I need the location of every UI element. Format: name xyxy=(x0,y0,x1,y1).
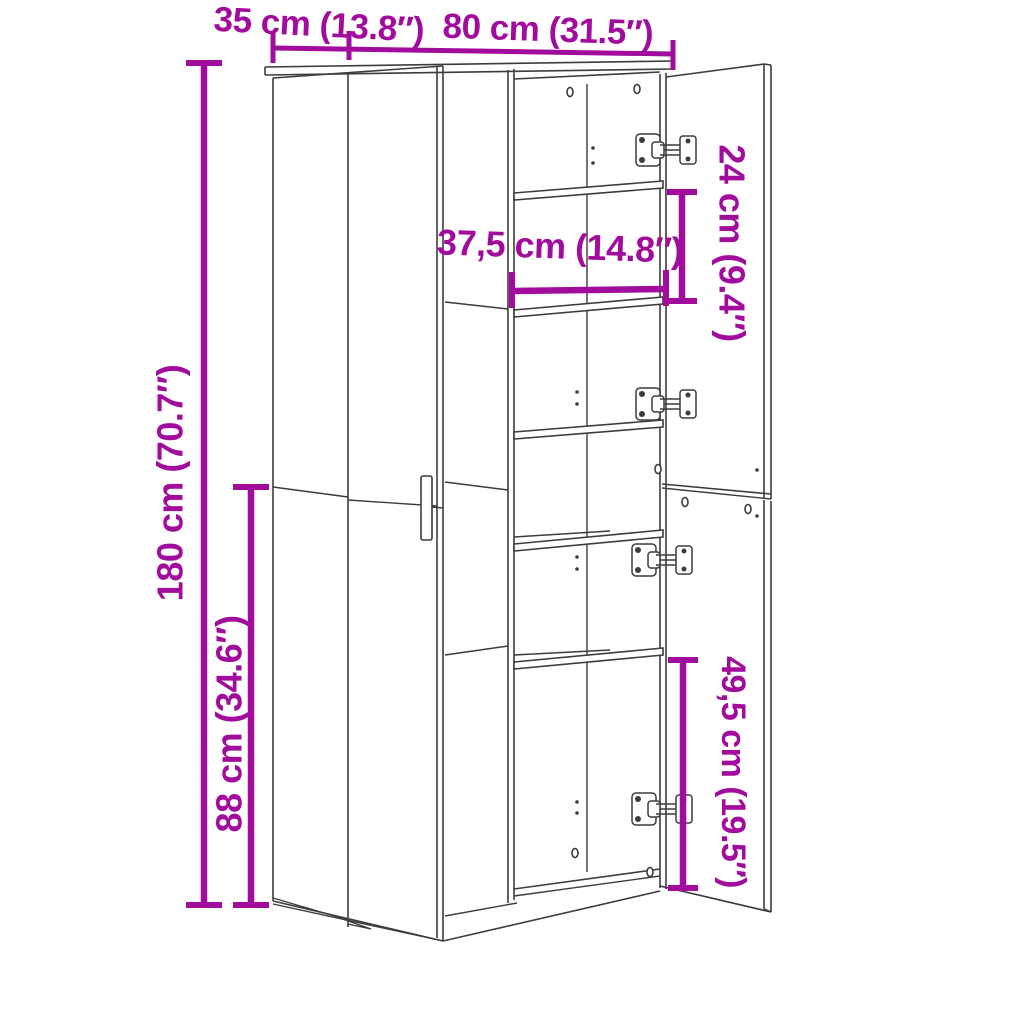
height-dimension-label: 180 cm (70.7″) xyxy=(150,365,191,601)
shelf-1 xyxy=(514,181,663,200)
width-dimension-label: 80 cm (31.5″) xyxy=(442,7,654,53)
lower-compartment-dimension-label: 49,5 cm (19.5″) xyxy=(714,656,752,888)
dimension-line-upper-compartment: 24 cm (9.4″) xyxy=(667,144,752,341)
dimension-line-top: 35 cm (13.8″) 80 cm (31.5″) xyxy=(213,0,673,70)
shelf-3 xyxy=(514,420,663,439)
door-handle xyxy=(421,476,432,540)
dimension-annotations: 35 cm (13.8″) 80 cm (31.5″) 180 cm (70.7… xyxy=(150,0,753,905)
upper-compartment-dimension-label: 24 cm (9.4″) xyxy=(711,144,752,341)
center-partition xyxy=(445,69,517,916)
dimension-line-lower-height: 88 cm (34.6″) xyxy=(209,487,269,905)
dimension-line-inner-width: 37,5 cm (14.8″) xyxy=(436,221,683,308)
cabinet-base xyxy=(443,869,660,941)
cabinet-top-panel xyxy=(265,61,674,75)
cabinet-diagram-svg: 35 cm (13.8″) 80 cm (31.5″) 180 cm (70.7… xyxy=(0,0,1024,1024)
product-dimension-diagram: 35 cm (13.8″) 80 cm (31.5″) 180 cm (70.7… xyxy=(0,0,1024,1024)
depth-dimension-label: 35 cm (13.8″) xyxy=(213,0,425,50)
hinge-icon xyxy=(632,544,692,576)
lower-height-dimension-label: 88 cm (34.6″) xyxy=(209,616,250,833)
inner-width-dimension-label: 37,5 cm (14.8″) xyxy=(436,221,683,271)
shelf-2 xyxy=(514,297,663,317)
left-closed-doors xyxy=(273,66,443,941)
dimension-line-lower-compartment: 49,5 cm (19.5″) xyxy=(668,656,752,888)
